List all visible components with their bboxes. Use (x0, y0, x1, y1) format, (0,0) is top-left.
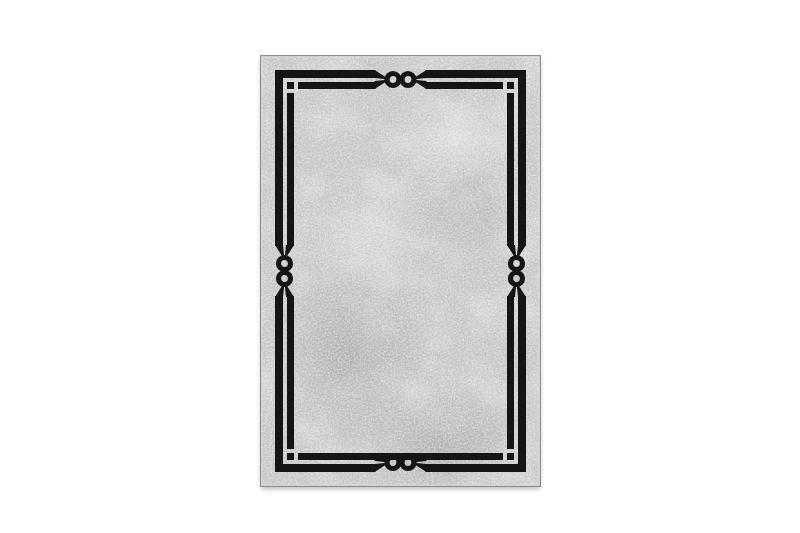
page-background (0, 0, 800, 533)
frame-corner-dot-top-left (287, 82, 294, 89)
frame-corner-dot-bottom-left (287, 453, 294, 460)
rug-graphic (260, 55, 541, 487)
rug-product-image (260, 55, 541, 487)
frame-corner-dot-top-right (507, 82, 514, 89)
frame-corner-dot-bottom-right (507, 453, 514, 460)
rug-field-texture (260, 55, 541, 487)
rug-texture-grain-dark (260, 55, 541, 487)
